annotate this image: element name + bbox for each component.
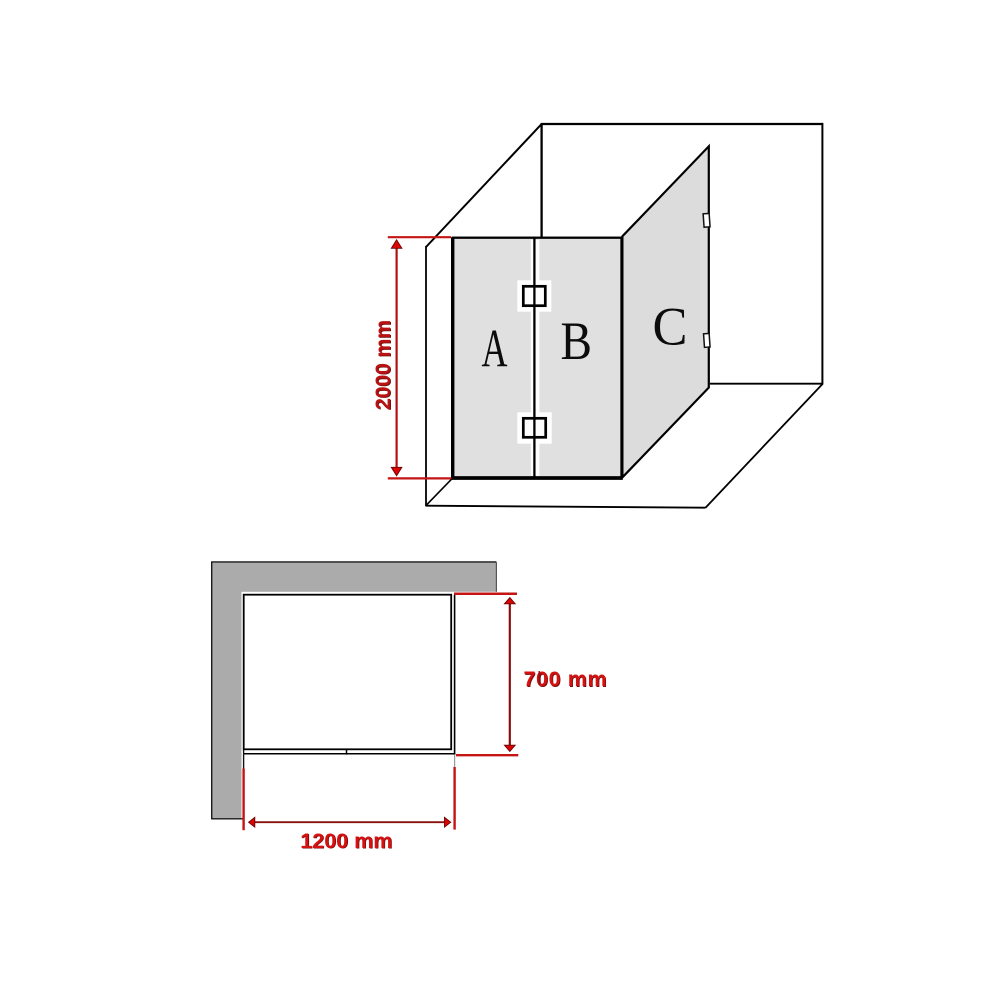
svg-text:A: A [482, 318, 508, 378]
svg-text:700 mm: 700 mm [524, 667, 608, 691]
svg-text:1200 mm: 1200 mm [300, 829, 392, 853]
svg-text:2000 mm: 2000 mm [372, 320, 395, 410]
svg-text:C: C [653, 297, 688, 357]
svg-text:B: B [561, 311, 593, 371]
